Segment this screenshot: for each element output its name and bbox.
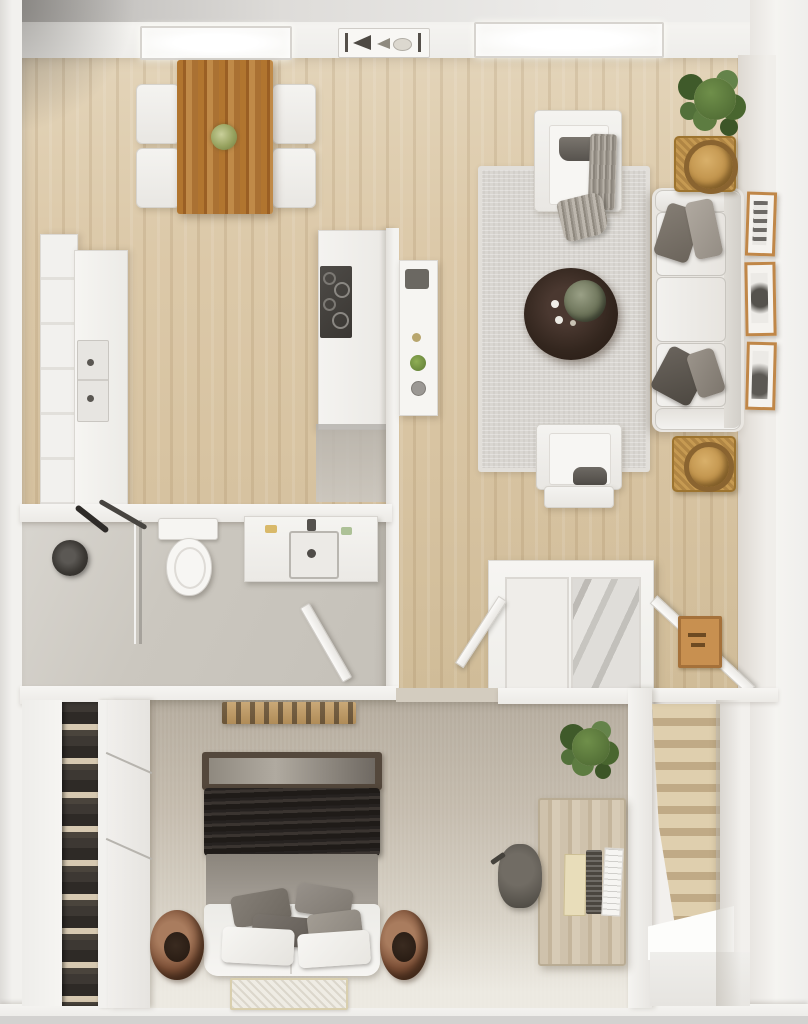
- bathroom-vanity: [244, 516, 378, 582]
- closet-mirror-panel: [571, 577, 641, 695]
- left-wall: [0, 0, 22, 1024]
- stairwell-top-wall: [648, 688, 778, 702]
- sofa-cushion: [656, 277, 726, 342]
- round-basket: [150, 910, 204, 980]
- wicker-tray: [684, 140, 738, 194]
- wicker-side-table: [672, 436, 736, 492]
- dining-chair: [272, 84, 316, 144]
- bed-pillow-white: [297, 930, 371, 969]
- shelf-item-bottle: [412, 333, 421, 342]
- vent-bar-right: [418, 33, 421, 52]
- toilet-tank: [158, 518, 218, 540]
- frame-art: [751, 273, 769, 323]
- candle: [570, 320, 576, 326]
- sink-drain: [87, 395, 94, 402]
- floor-plan: [0, 0, 808, 1024]
- soap-item: [265, 525, 277, 533]
- burner: [323, 298, 336, 311]
- doorway-threshold: [396, 688, 498, 702]
- doormat-mark: [691, 643, 705, 647]
- table-centerpiece: [211, 124, 237, 150]
- basket-opening: [164, 932, 190, 962]
- sink-drain: [307, 549, 316, 558]
- wall-frame: [745, 342, 777, 411]
- wicker-tray: [684, 442, 734, 492]
- ceiling-light-left: [140, 26, 292, 60]
- bed-wall-shelf: [222, 702, 356, 724]
- kitchen-lower-cabinet: [316, 424, 394, 502]
- vent-dot-icon: [393, 38, 412, 51]
- stairwell-right-shading: [716, 700, 750, 1006]
- entry-doormat: [678, 616, 722, 668]
- basket-opening: [392, 932, 416, 962]
- vent-bar-left: [345, 33, 348, 52]
- table-plant-bowl: [564, 280, 606, 322]
- desk-notepad: [563, 854, 586, 916]
- dining-chair: [272, 148, 316, 208]
- desk-paper: [601, 848, 624, 917]
- corner-plant: [694, 78, 736, 120]
- shower-head: [52, 540, 88, 576]
- wicker-side-table: [674, 136, 736, 192]
- kitchen-partition-wall: [386, 228, 399, 692]
- wall-frame: [744, 262, 776, 337]
- corner-shadow: [0, 0, 150, 130]
- headboard-panel: [209, 758, 375, 784]
- shelf-item-dark: [405, 269, 429, 289]
- kitchen-sink: [77, 340, 109, 422]
- shoe-closet-wall: [22, 700, 62, 1006]
- bed-pillow-white: [221, 926, 295, 966]
- desk-laptop: [586, 850, 602, 914]
- door-seam: [106, 752, 152, 774]
- sofa: [652, 188, 744, 432]
- sink-faucet: [307, 519, 316, 531]
- shelf-item-plant: [410, 355, 426, 371]
- burner: [334, 282, 350, 298]
- dining-chair: [136, 148, 180, 208]
- doormat-mark: [688, 633, 706, 637]
- frame-art: [751, 351, 768, 399]
- desk: [538, 798, 626, 966]
- stove-cooktop: [320, 266, 352, 338]
- armchair-backrest: [544, 486, 614, 508]
- sliding-door: [108, 700, 150, 1008]
- toilet-seat: [174, 547, 206, 589]
- sofa-backrest: [724, 192, 741, 428]
- bed-duvet-dark: [204, 788, 380, 856]
- soap-item: [341, 527, 352, 535]
- vent-arrow-icon: [377, 38, 390, 49]
- kitchen-tall-cabinet: [40, 234, 78, 510]
- shelf-item-jar: [411, 381, 426, 396]
- stairwell-left-wall: [628, 688, 652, 1008]
- coffee-table: [524, 268, 618, 360]
- bottom-edge: [0, 1016, 808, 1024]
- foot-rug: [230, 978, 348, 1010]
- ceiling-light-right: [474, 22, 664, 58]
- toilet-bowl: [166, 538, 212, 596]
- shoe-rack: [62, 702, 98, 1006]
- burner: [323, 272, 336, 285]
- candle: [551, 300, 559, 308]
- wall-shelf-unit: [399, 260, 438, 416]
- armchair: [536, 424, 622, 490]
- wall-frame: [745, 191, 777, 256]
- closet-divider-wall: [98, 700, 108, 1008]
- shower-glass: [134, 520, 136, 644]
- burner: [332, 312, 349, 329]
- air-vent-badge: [338, 28, 430, 58]
- vent-arrow-icon: [353, 35, 371, 50]
- sink-divider: [78, 379, 108, 381]
- bed-headboard: [202, 752, 382, 790]
- dining-chair: [136, 84, 180, 144]
- desk-plant: [572, 728, 610, 766]
- frame-art: [752, 201, 768, 245]
- sink-drain: [87, 359, 94, 366]
- candle: [555, 316, 563, 324]
- round-basket: [380, 910, 428, 980]
- door-seam: [106, 838, 152, 860]
- closet-door-panel: [505, 577, 569, 695]
- shower-glass: [139, 520, 142, 644]
- staircase-steps: [652, 704, 720, 926]
- armchair-cushion: [573, 467, 607, 485]
